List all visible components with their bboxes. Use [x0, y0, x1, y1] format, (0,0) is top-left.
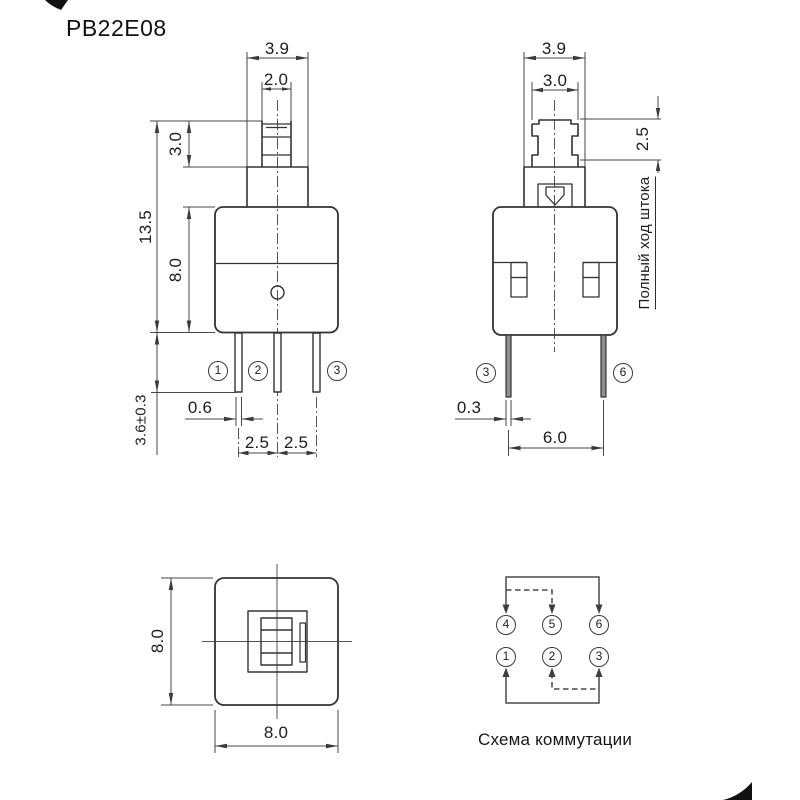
schematic-pin-2: 2: [542, 647, 562, 667]
bottom-view-dimension-arrows: [169, 578, 338, 748]
front-dim-pin-pitch-b: 2.5: [284, 433, 308, 453]
side-dim-stroke: 2.5: [633, 127, 653, 151]
front-dim-pin-pitch-a: 2.5: [245, 433, 269, 453]
front-dim-plunger-width: 2.0: [264, 70, 288, 90]
schematic-pin-1: 1: [496, 647, 516, 667]
side-dim-pin-span: 6.0: [543, 428, 567, 448]
side-lug-right: [583, 263, 599, 298]
schematic-pin-5: 5: [542, 615, 562, 635]
bottom-view-centerlines: [202, 564, 352, 719]
schematic-pin-3: 3: [589, 647, 609, 667]
top-corner-mark: [45, 0, 68, 10]
front-view-dimension-arrows: [155, 56, 317, 455]
schematic-wiring: [506, 577, 599, 703]
front-dim-plunger-height: 3.0: [166, 132, 186, 156]
bottom-right-corner-mark: [723, 782, 752, 800]
page-title: PB22E08: [66, 15, 167, 42]
side-stroke-caption: Полный ход штока: [636, 177, 656, 310]
schematic-bottom-dashed-link: [552, 673, 599, 689]
front-pin-label-3: 3: [327, 361, 347, 381]
front-body: [215, 207, 338, 333]
drawing-canvas: [0, 0, 800, 800]
side-pin-label-6: 6: [613, 363, 633, 383]
front-dim-pin-length: 3.6±0.3: [133, 394, 150, 445]
front-dim-total-height: 13.5: [136, 210, 156, 244]
front-pin-label-2: 2: [248, 361, 268, 381]
page-corner-marks: [45, 0, 752, 800]
datasheet-drawing-page: PB22E08 3.9 2.0 13.5 3.0 8.0 3.6±0.3 0.6…: [0, 0, 800, 800]
schematic-caption: Схема коммутации: [478, 730, 632, 750]
bottom-key-slot: [300, 623, 306, 662]
front-view-extension-lines: [150, 52, 308, 426]
front-pin-3: [313, 333, 320, 392]
schematic-pin-4: 4: [496, 615, 516, 635]
front-pin-1: [235, 333, 242, 392]
side-pin-label-3: 3: [476, 363, 496, 383]
side-dim-pin-thickness: 0.3: [457, 398, 481, 418]
front-pin-label-1: 1: [208, 361, 228, 381]
front-view-outline: [215, 121, 338, 392]
front-dim-pin-width: 0.6: [188, 398, 212, 418]
schematic-pin-6: 6: [589, 615, 609, 635]
bottom-view-dimensions: [161, 578, 338, 753]
side-dim-plunger-width: 3.0: [543, 71, 567, 91]
schematic-top-dashed-link: [506, 590, 552, 604]
front-pin-2: [274, 333, 281, 392]
side-pin-6: [601, 335, 606, 397]
bottom-dim-height: 8.0: [148, 629, 168, 653]
front-view-centerlines: [239, 100, 317, 457]
front-dim-body-height: 8.0: [166, 258, 186, 282]
side-lug-left: [511, 263, 527, 298]
bottom-dim-width: 8.0: [264, 723, 288, 743]
side-dim-shaft-width: 3.9: [542, 39, 566, 59]
front-dim-shaft-width: 3.9: [265, 39, 289, 59]
front-view-dimension-lines: [157, 58, 317, 455]
side-pin-3: [506, 335, 511, 397]
side-view-dimension-lines: [455, 58, 658, 448]
